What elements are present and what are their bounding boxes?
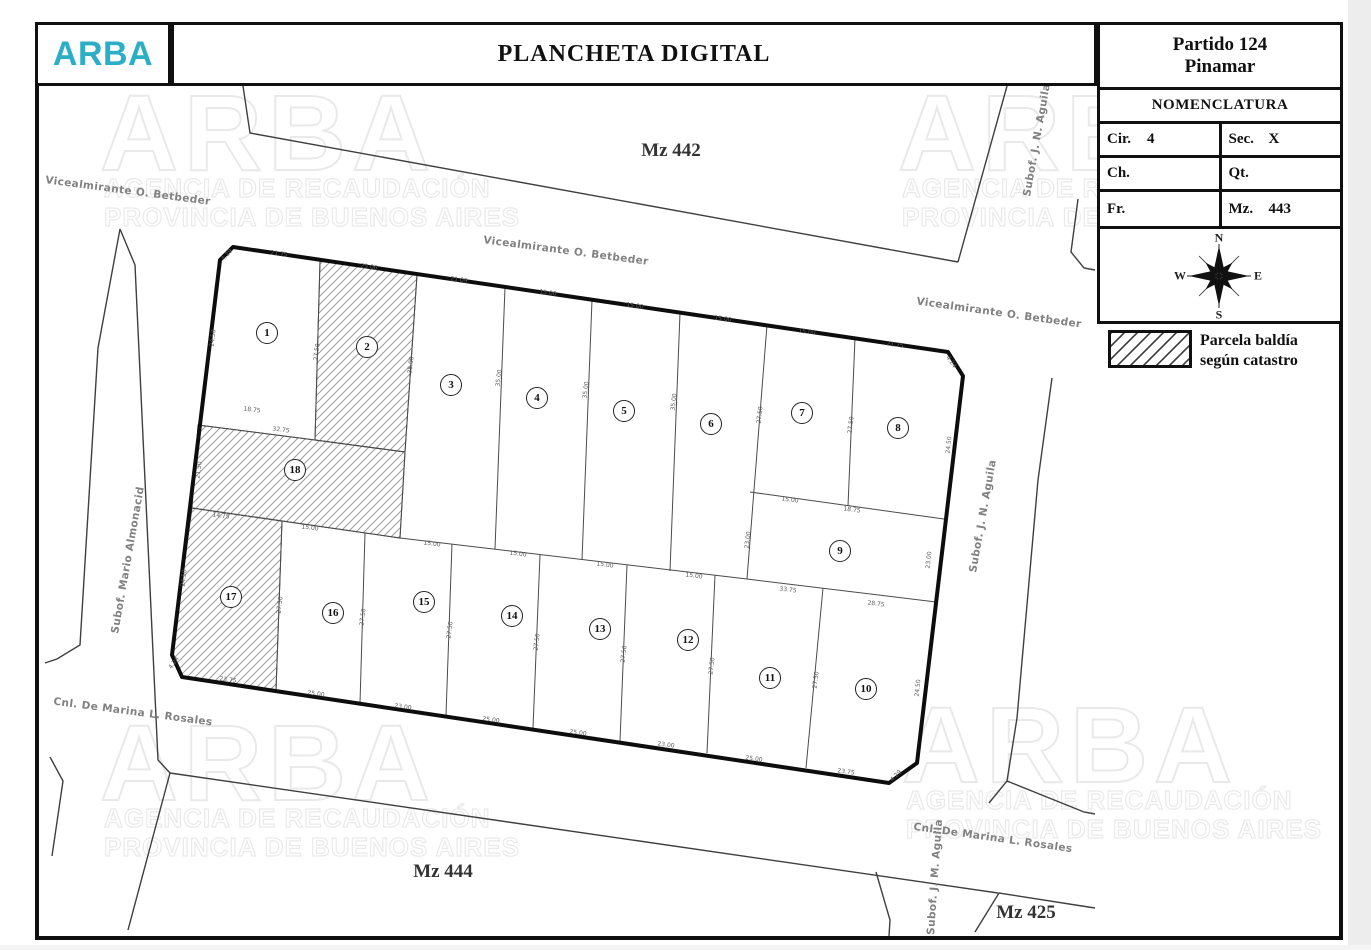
nomenclatura-row-1: Cir. 4 Sec. X — [1097, 121, 1343, 158]
field-qt: Qt. — [1222, 158, 1341, 189]
compass-north: N — [1215, 231, 1224, 246]
partido-box: Partido 124 Pinamar — [1097, 22, 1343, 90]
partido-line1: Partido 124 — [1173, 34, 1267, 56]
logo-box: ARBA — [35, 22, 171, 86]
nomenclatura-header: NOMENCLATURA — [1097, 87, 1343, 124]
field-ch: Ch. — [1100, 158, 1222, 189]
scan-edge-bottom — [0, 945, 1371, 950]
nomenclatura-row-3: Fr. Mz. 443 — [1097, 189, 1343, 229]
plancheta-digital-sheet: ARBAAGENCIA DE RECAUDACIÓNPROVINCIA DE B… — [0, 0, 1371, 950]
legend-line1: Parcela baldía — [1200, 331, 1298, 351]
nomenclatura-row-2: Ch. Qt. — [1097, 155, 1343, 192]
nomenclatura-title: NOMENCLATURA — [1152, 97, 1289, 114]
field-cir: Cir. 4 — [1100, 124, 1222, 155]
page-title: PLANCHETA DIGITAL — [498, 41, 771, 68]
field-mz: Mz. 443 — [1222, 192, 1341, 226]
compass-west: W — [1174, 269, 1186, 284]
field-sec: Sec. X — [1222, 124, 1341, 155]
arba-logo: ARBA — [53, 35, 153, 74]
compass-box: N S W E — [1097, 226, 1343, 324]
compass-east: E — [1254, 269, 1262, 284]
legend-text: Parcela baldía según catastro — [1200, 331, 1298, 371]
legend-line2: según catastro — [1200, 351, 1298, 371]
scan-edge-right — [1348, 0, 1371, 950]
field-fr: Fr. — [1100, 192, 1222, 226]
compass-south: S — [1216, 308, 1223, 323]
title-box: PLANCHETA DIGITAL — [171, 22, 1097, 86]
partido-line2: Pinamar — [1185, 56, 1256, 78]
legend-hatch-swatch — [1108, 330, 1192, 368]
